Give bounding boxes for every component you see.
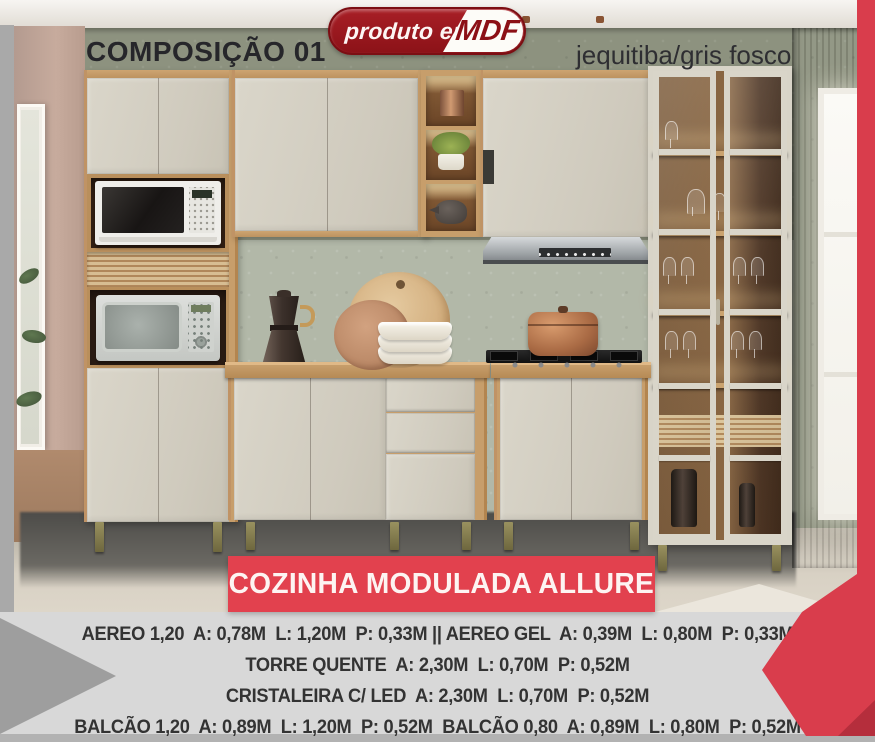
wood-top (87, 70, 229, 78)
mdf-badge: produto em MDF (328, 7, 526, 55)
glass-door-right (724, 71, 787, 540)
microwave-control-panel (189, 187, 215, 233)
finish-label: jequitiba/gris fosco (576, 40, 791, 71)
spec-line-torre: TORRE QUENTE A: 2,30M L: 0,70M P: 0,52M (18, 650, 858, 681)
copper-canister (440, 90, 464, 116)
wood-bottom (235, 231, 418, 237)
cabinet-leg (390, 522, 399, 550)
cooktop-knobs (500, 362, 630, 368)
shelf-cell-middle (426, 130, 476, 180)
pot-handle (596, 16, 604, 23)
tower-lower-doors (87, 368, 229, 522)
cabinet-leg (658, 545, 667, 571)
product-banner: COZINHA MODULADA ALLURE (228, 556, 655, 612)
wall-cabinet-doors (235, 78, 418, 231)
oven-niche (87, 287, 229, 368)
hood-control-panel (539, 248, 611, 257)
wall-cabinet-door (483, 78, 650, 237)
door-mullion (659, 383, 710, 389)
drawer (386, 378, 475, 412)
window-bar (824, 372, 858, 377)
product-banner-title: COZINHA MODULADA ALLURE (229, 568, 654, 601)
cabinet-body (494, 378, 648, 520)
drawer (386, 413, 475, 453)
plant-pot (438, 154, 464, 170)
cabinet-leg (95, 522, 104, 552)
open-shelf-unit (421, 70, 481, 237)
product-flyer: AEREO 1,20 A: 0,78M L: 1,20M P: 0,33M ||… (0, 0, 875, 742)
spec-line-balcao: BALCÃO 1,20 A: 0,89M L: 1,20M P: 0,52M B… (18, 712, 858, 742)
base-door (386, 454, 475, 520)
wood-top (483, 70, 650, 78)
cabinet-leg (630, 522, 639, 550)
moka-pot-lid (277, 290, 291, 297)
door-handle (716, 299, 720, 325)
shelf-cell-bottom (426, 184, 476, 231)
door-mullion (659, 309, 710, 315)
copper-pot (528, 312, 598, 356)
shelf-cell-top (426, 76, 476, 126)
base-doors (234, 378, 386, 520)
door-mullion (659, 149, 710, 155)
wall-cabinet-right (481, 70, 652, 237)
microwave-niche (87, 174, 229, 252)
tower-upper-doors (87, 78, 229, 174)
door-mullion (730, 149, 781, 155)
black-microwave (95, 181, 221, 245)
spec-line-cristaleira: CRISTALEIRA C/ LED A: 2,30M L: 0,70M P: … (18, 681, 858, 712)
microwave-base (99, 237, 217, 242)
bowl-stack (378, 322, 452, 364)
glass-display-cabinet (648, 66, 792, 545)
range-hood-base (483, 260, 648, 264)
microwave-door (102, 187, 184, 233)
base-cabinet-80 (494, 362, 648, 520)
wood-top (235, 70, 418, 78)
bowl (378, 322, 452, 340)
spec-line-aereo: AEREO 1,20 A: 0,78M L: 1,20M P: 0,33M ||… (18, 619, 858, 650)
wall-cabinet-120 (232, 70, 427, 237)
hot-tower-cabinet (84, 70, 238, 522)
silver-microwave (96, 295, 220, 361)
base-doors (500, 378, 642, 520)
wood-slat-panel (87, 252, 229, 287)
cabinet-body (228, 378, 487, 520)
plant-foliage (432, 132, 470, 156)
door-mullion (730, 383, 781, 389)
cabinet-leg (462, 522, 471, 550)
left-gray-strip (0, 25, 14, 612)
microwave-window (102, 302, 182, 352)
spec-list: AEREO 1,20 A: 0,78M L: 1,20M P: 0,33M ||… (0, 619, 875, 742)
glass-door-left (653, 71, 716, 540)
door-mullion (730, 455, 781, 461)
kettle (435, 200, 467, 224)
cabinet-handle-recess (483, 150, 494, 184)
pot-lid-knob (558, 306, 568, 313)
composition-title: COMPOSIÇÃO 01 (86, 36, 326, 68)
microwave-control-panel (188, 302, 214, 352)
door-mullion (659, 455, 710, 461)
range-hood (483, 237, 648, 262)
cabinet-leg (246, 522, 255, 550)
badge-material-box: MDF (443, 10, 523, 52)
cabinet-leg (213, 522, 222, 552)
window-bar (824, 232, 858, 237)
door-mullion (730, 229, 781, 235)
kitchen-photo (0, 0, 875, 612)
right-window-glass (824, 94, 858, 514)
base-cabinet-120 (228, 362, 487, 520)
cabinet-leg (504, 522, 513, 550)
door-mullion (659, 229, 710, 235)
burner-grate (490, 351, 518, 361)
cabinet-leg (772, 545, 781, 571)
door-mullion (730, 309, 781, 315)
burner-grate (610, 351, 638, 361)
